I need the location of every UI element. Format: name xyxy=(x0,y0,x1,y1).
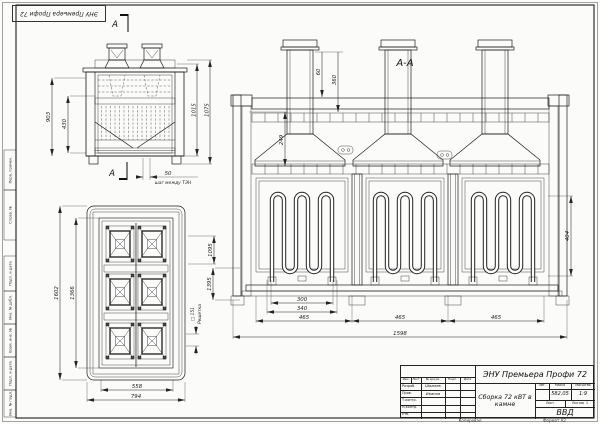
dim-top-small: 60 xyxy=(316,68,322,75)
detail-callout xyxy=(437,151,452,159)
footer-copy: Копировал xyxy=(440,418,500,423)
section-letter-bottom: А xyxy=(108,169,115,179)
front-view: А А 430 903 1015 1075 xyxy=(46,14,212,186)
dim-front-h-outer: 1075 xyxy=(205,103,211,117)
dim-plan-inner-h: 1366 xyxy=(70,286,76,300)
front-step-note: шаг между ТЭН xyxy=(155,180,192,186)
dim-mid: 340 xyxy=(297,306,308,312)
side-field-label: Подп. и дата xyxy=(9,261,13,285)
plan-dimensions: 1366 1602 558 794 1095 □ 151 Решетка xyxy=(54,206,216,402)
tb-row-label: Утв. xyxy=(402,412,421,419)
dim-section-left: 1395 xyxy=(207,277,213,291)
tb-row-label: Пров. xyxy=(402,390,421,397)
base xyxy=(231,285,569,305)
tb-col: Подп. xyxy=(445,377,460,383)
grate-label: Решетка xyxy=(197,304,203,324)
chamber xyxy=(366,178,444,285)
tb-sheets-value: 1 xyxy=(586,402,588,406)
tb-row-label: Разраб. xyxy=(402,383,421,390)
side-field-label: Подп. и дата xyxy=(9,361,13,385)
dim-opening: 300 xyxy=(297,297,308,303)
dim-top-big: 360 xyxy=(332,74,338,85)
dim-plan-outer-w: 794 xyxy=(131,394,142,400)
plan-view: 1366 1602 558 794 1095 □ 151 Решетка xyxy=(54,206,216,402)
side-field-label: Взам. инв. № xyxy=(9,328,13,353)
tb-col: Дата xyxy=(460,377,475,383)
side-field-label: Перв. примен. xyxy=(9,157,13,184)
footer-format: Формат А2 xyxy=(527,418,582,423)
tb-sheet-label: Лист xyxy=(535,400,565,407)
dim-stack-height: 249 xyxy=(279,134,285,145)
heating-element-coil xyxy=(473,194,533,282)
dim-pitch: 465 xyxy=(299,315,310,321)
drawing-sheet: Перв. примен. Справ. № Подп. и дата Инв.… xyxy=(0,0,600,424)
grate-modules xyxy=(106,226,166,359)
tb-lit-label: Лит. xyxy=(535,383,549,389)
tb-scale-value: 1:9 xyxy=(571,389,595,400)
tb-doc-title: Сборка 72 кВТ в камне xyxy=(477,384,533,418)
side-field-label: Справ. № xyxy=(9,206,13,224)
dim-pitch: 465 xyxy=(395,315,406,321)
heating-element-coil xyxy=(272,194,332,282)
dim-total: 1598 xyxy=(393,331,407,337)
dim-front-inner: 430 xyxy=(62,118,68,129)
drawing-canvas: Перв. примен. Справ. № Подп. и дата Инв.… xyxy=(0,0,600,424)
chimney-stub xyxy=(140,44,164,68)
dim-grate-size: □ 151 xyxy=(190,307,196,321)
side-field-label: Инв. № подл. xyxy=(9,391,13,416)
tb-sheets-label: Листов xyxy=(572,402,584,406)
tb-product: ЭНУ Премьера Профи 72 xyxy=(475,366,595,383)
dim-chamber-height: 404 xyxy=(565,230,571,241)
dim-front-h-inner: 1015 xyxy=(192,103,198,117)
tb-sheets: Листов 1 xyxy=(565,400,595,407)
chamber xyxy=(462,178,544,285)
dim-plan-outer-h: 1602 xyxy=(54,286,60,300)
frame-side-fields: Перв. примен. Справ. № Подп. и дата Инв.… xyxy=(4,150,16,417)
stack-and-bell xyxy=(255,40,345,166)
front-dimensions: 430 903 1015 1075 50 шаг между ТЭН xyxy=(46,60,212,186)
section-cut-mark: А xyxy=(111,14,128,32)
dim-pitch: 465 xyxy=(491,315,502,321)
dim-plan-right: 1095 xyxy=(208,243,214,257)
section-view: А-А xyxy=(207,40,573,339)
dim-front-step: 50 xyxy=(165,171,172,177)
stamp-text: ЭНУ Премьера Профи 72 xyxy=(20,10,98,17)
chamber xyxy=(256,178,348,285)
stack-and-bell xyxy=(450,40,540,166)
tb-row-label: Н.контр. xyxy=(402,405,421,412)
section-cut-mark: А xyxy=(108,162,127,180)
heating-element-coil xyxy=(375,194,435,282)
title-block: ЭНУ Премьера Профи 72 Сборка 72 кВТ в ка… xyxy=(400,365,594,418)
top-left-stamp: ЭНУ Премьера Профи 72 xyxy=(12,5,106,22)
side-field-label: Инв. № дубл. xyxy=(9,295,13,320)
dim-plan-inner-w: 558 xyxy=(132,384,143,390)
tb-row-label: Т.контр. xyxy=(402,397,421,404)
dim-front-left: 903 xyxy=(46,111,52,122)
section-letter-top: А xyxy=(111,20,118,30)
chimney-stub xyxy=(105,44,129,68)
tb-row-name: Иванов xyxy=(421,390,445,397)
tb-row-name: Швалев xyxy=(421,383,445,390)
detail-callout xyxy=(338,146,353,154)
tb-mass-value: 582,05 xyxy=(549,389,571,400)
